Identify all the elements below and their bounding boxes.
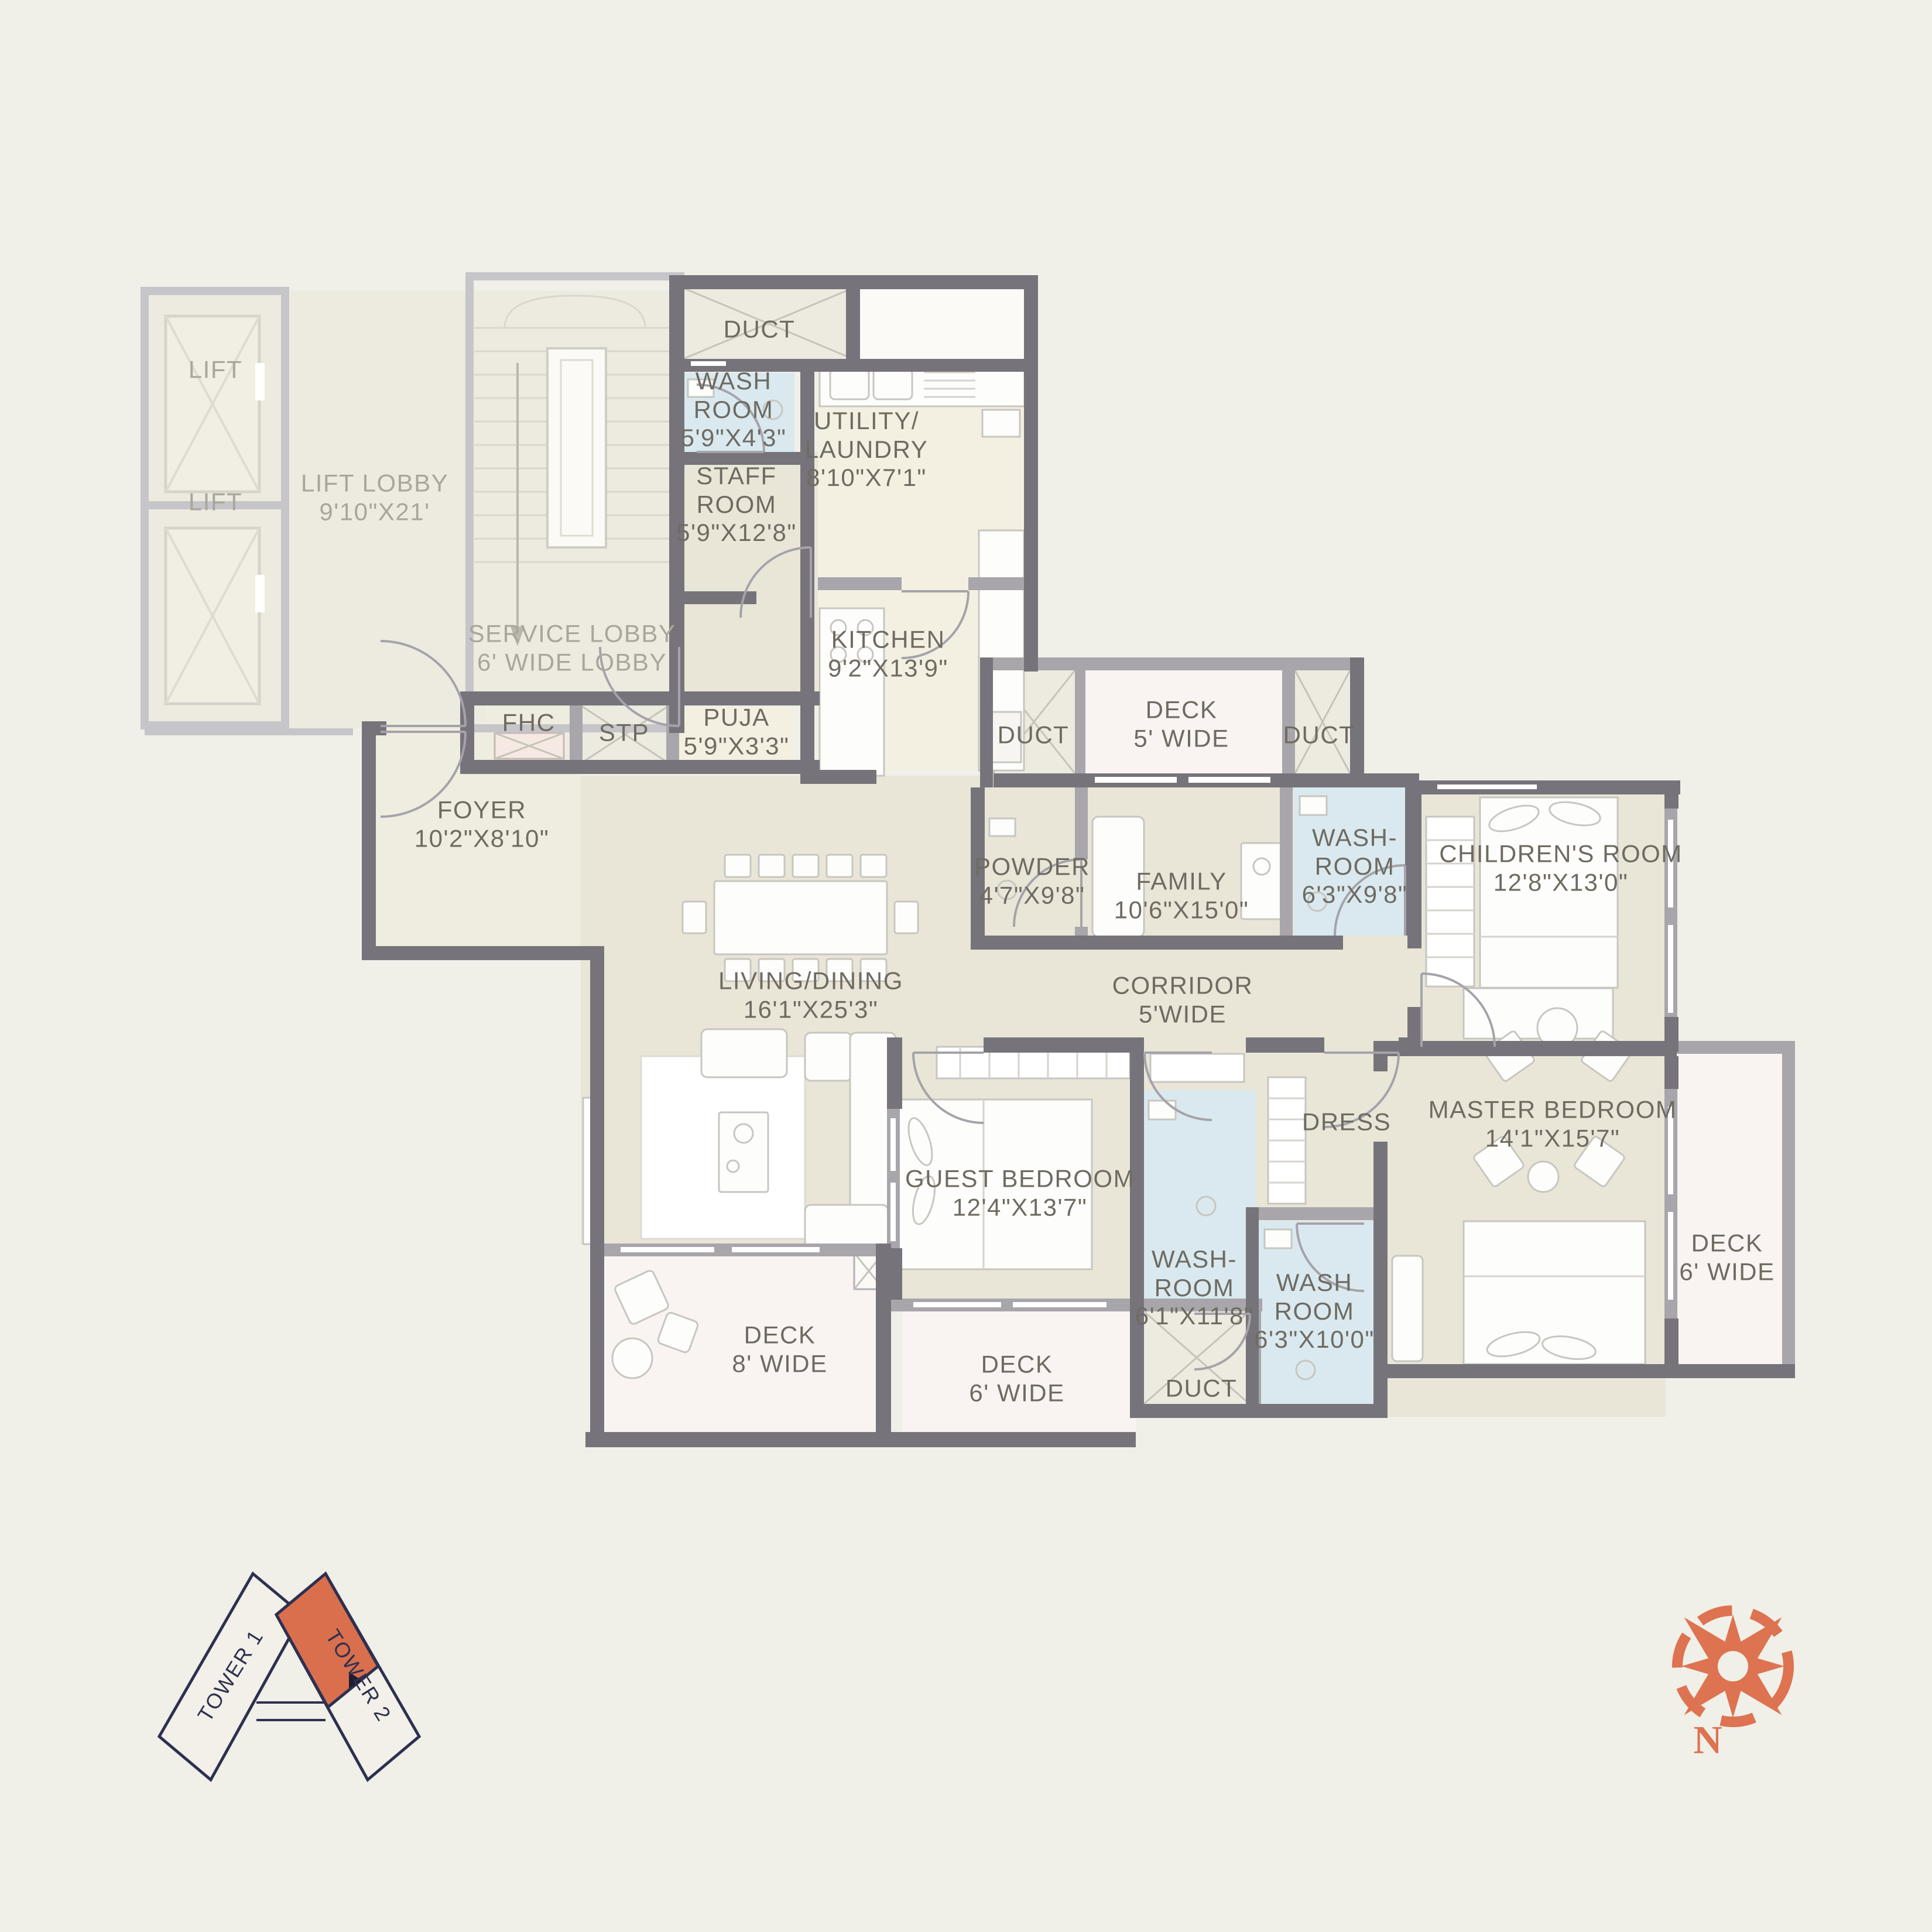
room-dims: 5' WIDE [1133, 724, 1229, 753]
room-label-staff-room: STAFF ROOM5'9"X12'8" [676, 462, 797, 547]
room-label-master-bedroom: MASTER BEDROOM14'1"X15'7" [1429, 1095, 1677, 1152]
room-name: KITCHEN [828, 625, 948, 654]
room-dims: 9'10"X21' [301, 498, 448, 526]
room-dims: 6' WIDE [1679, 1258, 1775, 1286]
room-name: MASTER BEDROOM [1429, 1095, 1677, 1124]
room-dims: 6'1"X11'8" [1135, 1302, 1254, 1331]
room-dims: 6'3"X10'0" [1254, 1325, 1375, 1354]
room-name: FOYER [415, 796, 550, 824]
room-label-deck-5: DECK5' WIDE [1133, 696, 1229, 752]
room-label-duct-deck-right: DUCT [1283, 721, 1355, 750]
room-label-duct-top: DUCT [724, 316, 796, 344]
room-name: FHC [502, 709, 556, 738]
room-name: LIFT LOBBY [301, 469, 448, 498]
room-dims: 6' WIDE LOBBY [468, 648, 676, 677]
room-label-duct-deck-left: DUCT [998, 721, 1070, 750]
tower-key-plan [159, 1574, 419, 1780]
room-name: DECK [969, 1350, 1064, 1379]
room-label-washroom-guest: WASH- ROOM6'1"X11'8" [1135, 1245, 1254, 1331]
room-label-childrens-room: CHILDREN'S ROOM12'8"X13'0" [1439, 840, 1683, 896]
room-name: STAFF ROOM [676, 462, 797, 519]
room-name: POWDER [974, 852, 1090, 881]
room-name: DECK [1679, 1229, 1775, 1258]
room-label-deck-8: DECK8' WIDE [732, 1321, 827, 1378]
room-name: CORRIDOR [1112, 971, 1253, 1000]
room-dims: 8' WIDE [732, 1349, 827, 1378]
room-name: WASH- ROOM [1135, 1245, 1254, 1302]
room-dims: 4'7"X9'8" [974, 881, 1090, 910]
room-dims: 6' WIDE [969, 1379, 1064, 1407]
room-name: LIFT [189, 488, 242, 517]
room-label-powder: POWDER4'7"X9'8" [974, 852, 1090, 909]
room-name: DUCT [998, 721, 1070, 750]
room-name: SERVICE LOBBY [468, 619, 676, 648]
compass-north-icon [1635, 1568, 1831, 1764]
room-name: PUJA [684, 703, 790, 732]
room-name: STP [599, 719, 649, 748]
room-dims: 14'1"X15'7" [1429, 1124, 1677, 1153]
room-name: UTILITY/ LAUNDRY [805, 407, 928, 464]
compass-north-label: N [1693, 1717, 1722, 1763]
room-label-kitchen: KITCHEN9'2"X13'9" [828, 625, 948, 682]
room-dims: 12'8"X13'0" [1439, 868, 1683, 897]
room-dims: 12'4"X13'7" [905, 1193, 1135, 1222]
room-dims: 5'9"X4'3" [681, 424, 787, 453]
room-label-washroom-family: WASH- ROOM6'3"X9'8" [1302, 824, 1408, 909]
room-name: DECK [1133, 696, 1229, 724]
floor-plan-drawing [0, 0, 1932, 1932]
room-name: DECK [732, 1321, 827, 1349]
room-dims: 16'1"X25'3" [718, 995, 903, 1024]
room-label-lift-lobby: LIFT LOBBY9'10"X21' [301, 469, 448, 526]
room-label-service-lobby: SERVICE LOBBY6' WIDE LOBBY [468, 619, 676, 676]
room-label-guest-bedroom: GUEST BEDROOM12'4"X13'7" [905, 1164, 1135, 1221]
room-label-puja: PUJA5'9"X3'3" [684, 703, 790, 760]
room-label-foyer: FOYER10'2"X8'10" [415, 796, 550, 852]
room-name: WASH ROOM [681, 367, 787, 424]
floorplan-page: { "rooms": { "lift1": {"name": "LIFT"}, … [0, 0, 1932, 1932]
room-name: GUEST BEDROOM [905, 1164, 1135, 1193]
room-name: DUCT [724, 316, 796, 344]
room-name: CHILDREN'S ROOM [1439, 840, 1683, 868]
room-name: LIFT [189, 356, 242, 385]
room-label-lift-1: LIFT [189, 356, 242, 385]
room-label-washroom-staff: WASH ROOM5'9"X4'3" [681, 367, 787, 453]
room-label-dress: DRESS [1302, 1108, 1391, 1137]
room-dims: 5'9"X3'3" [684, 732, 790, 761]
room-dims: 6'3"X9'8" [1302, 881, 1408, 909]
room-name: DUCT [1283, 721, 1355, 750]
room-label-duct-bottom: DUCT [1166, 1375, 1238, 1403]
room-dims: 10'2"X8'10" [415, 824, 550, 853]
room-label-deck-6-master: DECK6' WIDE [1679, 1229, 1775, 1286]
room-label-utility: UTILITY/ LAUNDRY8'10"X7'1" [805, 407, 928, 492]
room-dims: 5'WIDE [1112, 1000, 1253, 1029]
room-label-deck-6-guest: DECK6' WIDE [969, 1350, 1064, 1407]
room-label-family: FAMILY10'6"X15'0" [1114, 867, 1249, 924]
room-label-living-dining: LIVING/DINING16'1"X25'3" [718, 967, 903, 1023]
room-label-corridor: CORRIDOR5'WIDE [1112, 971, 1253, 1028]
room-name: DRESS [1302, 1108, 1391, 1137]
room-name: DUCT [1166, 1375, 1238, 1403]
room-label-washroom-master: WASH ROOM6'3"X10'0" [1254, 1269, 1375, 1354]
room-dims: 9'2"X13'9" [828, 654, 948, 683]
room-dims: 5'9"X12'8" [676, 519, 797, 547]
room-label-fhc: FHC [502, 709, 556, 738]
room-dims: 8'10"X7'1" [805, 464, 928, 492]
room-name: WASH ROOM [1254, 1269, 1375, 1325]
room-name: FAMILY [1114, 867, 1249, 896]
room-name: LIVING/DINING [718, 967, 903, 995]
room-label-stp: STP [599, 719, 649, 748]
room-dims: 10'6"X15'0" [1114, 896, 1249, 924]
room-name: WASH- ROOM [1302, 824, 1408, 881]
room-label-lift-2: LIFT [189, 488, 242, 517]
